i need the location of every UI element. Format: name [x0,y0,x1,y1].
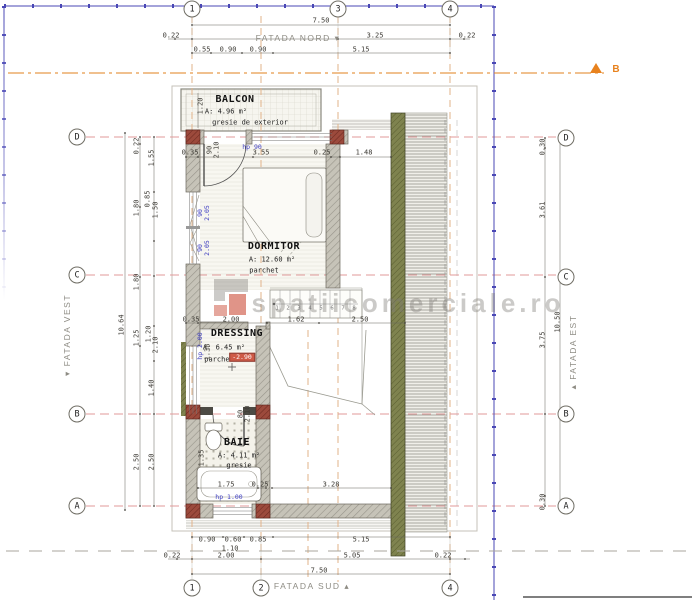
grid-bubble-D: D [558,130,575,147]
facade-south-label: FATADA SUD ▴ [274,582,350,591]
grid-bubble-B: B [69,406,86,423]
text-dimv: 0.22 [134,138,141,155]
room-balcon-label: BALCON [215,95,254,105]
text-dim: 5.15 [353,47,370,54]
text-bluev: hp 2.00 [197,332,204,359]
text-stairnum: 8 [352,306,355,312]
grid-bubble-3: 3 [330,1,347,18]
text-dim: 7.50 [313,18,330,25]
facade-north-label: FATADA NORD ▾ [256,34,341,43]
labels-layer: 7.500.223.250.220.550.900.905.15FATADA N… [0,0,692,600]
text-stairnum: 6 [330,306,333,312]
section-marker-label: B [612,65,619,75]
text-dimv: 2.10 [245,406,252,423]
room-baie-label: BAIE [224,438,250,448]
text-dim: 0.25 [314,150,331,157]
text-stairnum: 2 [286,306,289,312]
text-dim: 0.60 [225,537,242,544]
text-dim: 2.00 [223,317,240,324]
text-dimv: 1.80 [134,274,141,291]
text-dimv: 0.85 [145,191,152,208]
grid-bubble-C: C [558,269,575,286]
text-dim: 1.48 [356,150,373,157]
text-small: A: 4.96 m² [205,109,247,116]
grid-bubble-B: B [558,406,575,423]
text-dimv: 3.61 [540,202,547,219]
text-dimv: 1.40 [149,380,156,397]
floor-plan-canvas: 7.500.223.250.220.550.900.905.15FATADA N… [0,0,692,600]
text-stairnum: 1 [275,306,278,312]
text-small: gresie [226,463,251,470]
text-dimv: 2.50 [149,454,156,471]
text-stairnum: 5 [319,306,322,312]
text-dim: 0.55 [194,47,211,54]
text-dim: 1.75 [218,482,235,489]
text-stairnum: 3 [297,306,300,312]
text-blue: hp 1.00 [215,494,242,501]
grid-bubble-A: A [69,498,86,515]
text-dimv: 1.55 [149,150,156,167]
grid-bubble-4: 4 [442,580,459,597]
text-dimv: 1.80 [134,200,141,217]
grid-bubble-1: 1 [184,580,201,597]
text-dim: 0.22 [164,553,181,560]
text-dim: 0.22 [459,33,476,40]
grid-bubble-C: C [69,267,86,284]
text-dimv: 0.30 [540,139,547,156]
facade-east-label: ▴ FATADA EST [569,315,578,390]
text-dimv: 3.75 [540,332,547,349]
text-dim: 0.35 [183,317,200,324]
text-dim: 0.85 [250,537,267,544]
room-dressing-label: DRESSING [211,329,263,339]
grid-bubble-A: A [558,498,575,515]
text-dimv: 1.38 [205,344,212,361]
text-small: A: 12.60 m² [249,257,295,264]
text-dim: 5.15 [353,537,370,544]
text-dim: 7.50 [311,568,328,575]
text-dimv: 2.10 [214,142,221,159]
text-dimv: 0.30 [540,494,547,511]
text-bluev: 2.05 [204,205,211,221]
level-marker: -2.90 [229,353,255,362]
text-dimv: 1.50 [153,202,160,219]
grid-bubble-1: 1 [184,1,201,18]
room-dormitor-label: DORMITOR [248,242,300,252]
text-dimv: 10.64 [119,314,126,335]
text-dim: 0.90 [220,47,237,54]
watermark-text: spatiicomerciale.ro [252,290,565,316]
text-dimv: 1.20 [198,98,205,115]
text-dimv: 1.25 [134,330,141,347]
text-dim: 2.00 [218,553,235,560]
text-bluev: 2.05 [204,240,211,256]
text-dim: 0.90 [250,47,267,54]
text-stairnum: 4 [308,306,311,312]
text-dimv: 1.35 [199,450,206,467]
text-small: A: 4.11 m² [218,453,260,460]
grid-bubble-4: 4 [442,1,459,18]
text-blue: hp 90 [242,144,262,151]
text-dim: 3.28 [323,482,340,489]
text-dim: 0.25 [252,482,269,489]
text-dim: 0.22 [163,33,180,40]
text-dim: 0.35 [182,150,199,157]
text-stairnum: 7 [341,306,344,312]
text-small: parchet [249,268,279,275]
text-dimv: 2.10 [153,337,160,354]
text-dim: 0.22 [435,553,452,560]
text-dim: 5.05 [344,553,361,560]
facade-west-label: ▾ FATADA VEST [63,294,72,376]
text-dim: 3.25 [367,33,384,40]
grid-bubble-2: 2 [253,580,270,597]
text-small: gresie de exterior [212,120,288,127]
grid-bubble-D: D [69,129,86,146]
text-dim: 0.90 [199,537,216,544]
text-dimv: 2.50 [134,454,141,471]
